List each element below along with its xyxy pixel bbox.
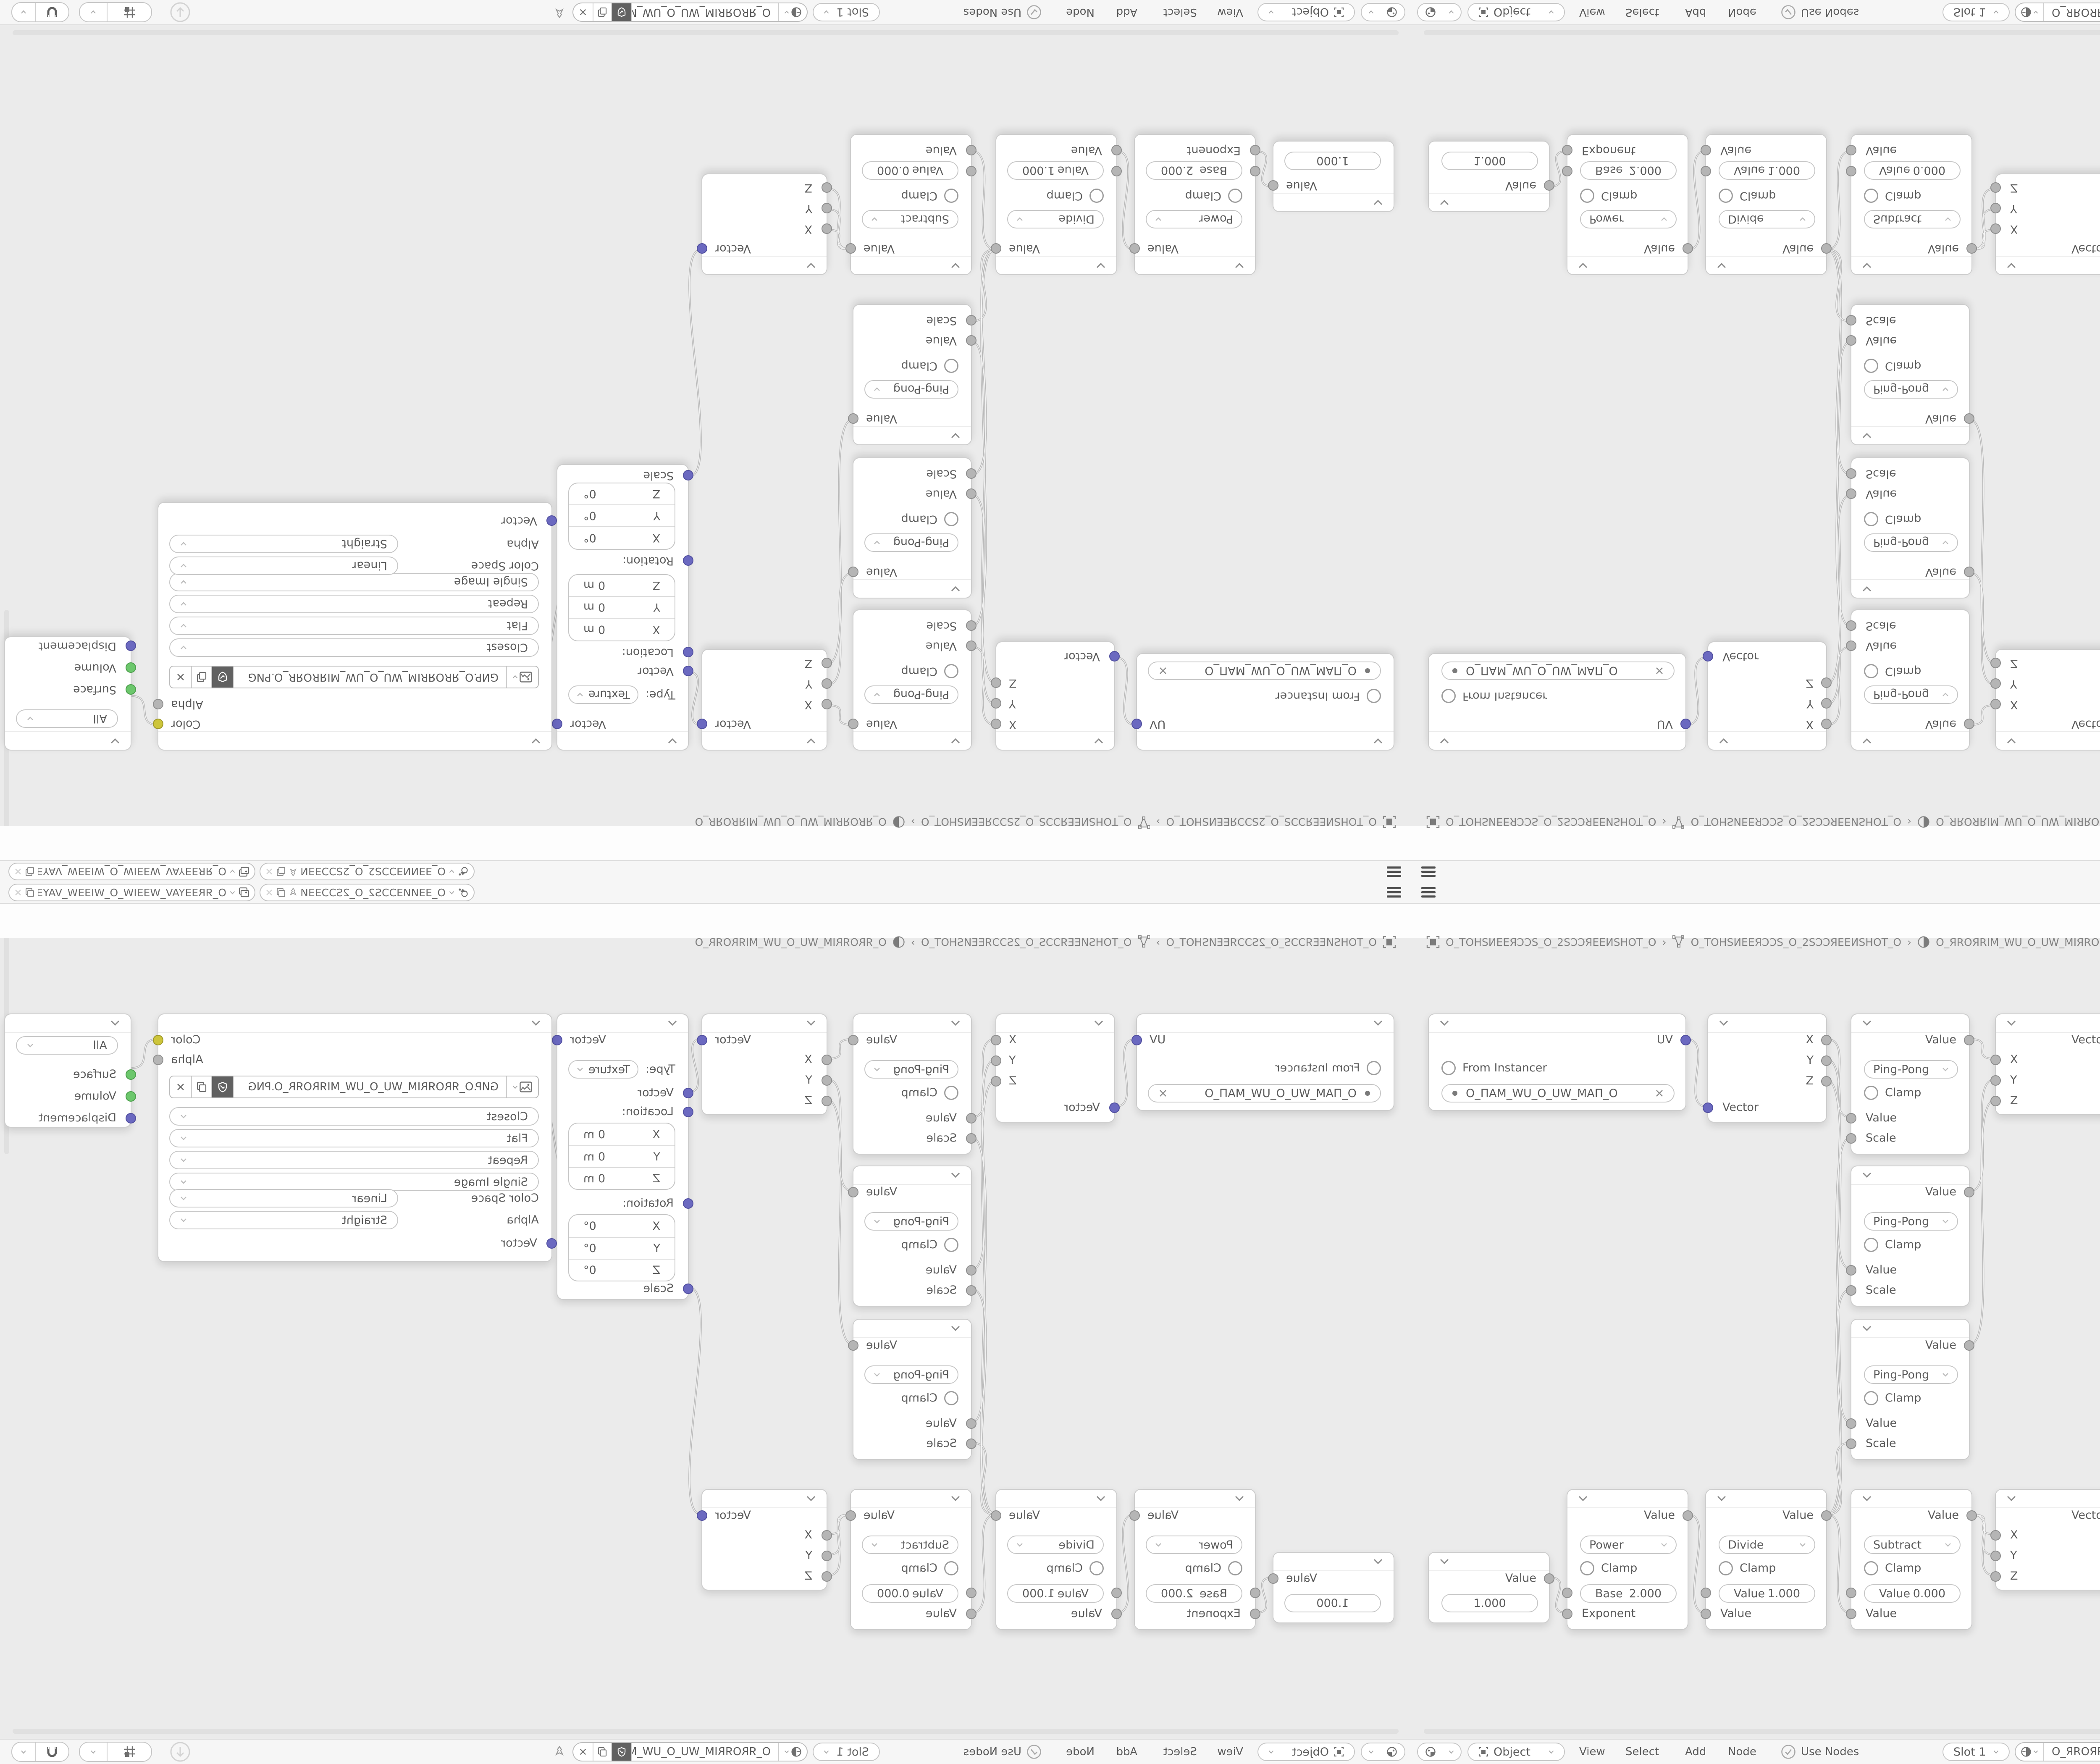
uv-map-selector[interactable]: O_ПAM_WU_O_UW_MAП_O [1148, 661, 1381, 680]
node-header[interactable] [1429, 193, 1549, 211]
snap-target-dropdown[interactable] [79, 2, 152, 22]
node-header[interactable] [1429, 1553, 1549, 1571]
node-math-power[interactable]: ValuePowerClampBase2.000Exponent [1134, 134, 1256, 275]
node-math-ping-pong-1[interactable]: ValuePing-PongClampValueScale [1851, 1013, 1970, 1155]
collapse-chevron-icon[interactable] [1096, 263, 1105, 268]
z-input-socket[interactable] [1990, 182, 2001, 193]
collapse-chevron-icon[interactable] [951, 586, 960, 592]
shader-mode-dropdown[interactable]: Object [1257, 3, 1355, 21]
slot-dropdown[interactable]: Slot 1 [813, 3, 880, 21]
menu-hamburger-button[interactable] [1387, 887, 1401, 898]
value-output-socket[interactable] [845, 243, 856, 254]
node-math-ping-pong-3[interactable]: ValuePing-PongClampValueScale [1851, 304, 1970, 445]
material-browse-dropdown[interactable] [2016, 1743, 2043, 1761]
clear-x-icon[interactable] [1159, 667, 1167, 675]
clamp-checkbox[interactable] [1580, 1561, 1594, 1575]
rotation-z-value[interactable]: 0° [583, 1264, 596, 1277]
material-datablock-selector[interactable]: O_ЯROЯRIM_WU_O_UW_MIЯROЯR_O [2015, 1742, 2100, 1761]
node-combine-xyz-1[interactable]: VectorXYZ [701, 649, 827, 751]
node-header[interactable] [5, 1014, 131, 1033]
collapse-chevron-icon[interactable] [1862, 1020, 1872, 1026]
menu-view[interactable]: View [1579, 1740, 1605, 1764]
value-output-socket[interactable] [1683, 1510, 1693, 1521]
node-header[interactable] [1708, 731, 1826, 750]
math-operation-dropdown[interactable]: Ping-Pong [1864, 533, 1958, 552]
node-material-output[interactable]: All Surface Volume Displacement [4, 1013, 131, 1128]
second-input-socket[interactable] [966, 1609, 976, 1619]
node-header[interactable] [851, 1490, 971, 1508]
math-operation-dropdown[interactable]: Ping-Pong [864, 533, 958, 552]
pin-icon[interactable] [289, 866, 297, 877]
second-input-socket[interactable] [1846, 1609, 1856, 1619]
field-input-socket[interactable] [1701, 1588, 1711, 1598]
value-field[interactable]: Value1.000 [1007, 161, 1104, 180]
material-datablock-selector[interactable]: O_ЯROЯRIM_WU_O_UW_MIЯROЯR_O [572, 3, 808, 22]
scale-input-socket[interactable] [1846, 315, 1856, 325]
collapse-chevron-icon[interactable] [1235, 263, 1244, 268]
node-mapping[interactable]: Vector Type: Texture Vector Location: X0… [556, 1013, 689, 1300]
node-header[interactable] [158, 731, 551, 750]
scale-input-socket[interactable] [966, 468, 976, 479]
interpolation-dropdown[interactable]: Closest [169, 1107, 539, 1126]
node-math-ping-pong-2[interactable]: ValuePing-PongClampValueScale [1851, 457, 1970, 598]
material-browse-dropdown[interactable] [2016, 3, 2043, 21]
clamp-checkbox[interactable] [1864, 512, 1878, 526]
node-header[interactable] [996, 731, 1114, 750]
node-combine-xyz-1[interactable]: VectorXYZ [1995, 649, 2100, 751]
collapse-chevron-icon[interactable] [1719, 1020, 1728, 1026]
value-output-socket[interactable] [991, 243, 1001, 254]
second-input-socket[interactable] [1250, 145, 1260, 155]
node-header[interactable] [1567, 256, 1688, 274]
menu-add[interactable]: Add [1116, 1740, 1137, 1764]
vector-input-socket[interactable] [1109, 651, 1120, 661]
y-input-socket[interactable] [822, 678, 832, 689]
z-output-socket[interactable] [1821, 1076, 1832, 1087]
collapse-chevron-icon[interactable] [668, 738, 677, 744]
scale-input-socket[interactable] [1846, 1438, 1856, 1449]
clear-x-icon[interactable] [1655, 667, 1664, 675]
node-header[interactable] [1137, 731, 1394, 750]
collapse-chevron-icon[interactable] [1440, 738, 1449, 744]
x-output-socket[interactable] [1821, 719, 1832, 729]
node-header[interactable] [1429, 1014, 1685, 1033]
image-browse-dropdown[interactable] [507, 1076, 538, 1097]
menu-node[interactable]: Node [1066, 0, 1095, 24]
scale-input-socket[interactable] [966, 1438, 976, 1449]
field-input-socket[interactable] [1846, 166, 1856, 176]
node-combine-xyz-2[interactable]: VectorXYZ [701, 1489, 827, 1591]
clamp-checkbox[interactable] [1228, 1561, 1242, 1575]
vector-input-socket[interactable] [683, 666, 693, 676]
vector-output-socket[interactable] [697, 1035, 707, 1045]
node-math-subtract[interactable]: ValueSubtractClampValue0.000Value [1851, 1489, 1972, 1630]
scale-input-socket[interactable] [683, 470, 693, 480]
node-math-ping-pong-1[interactable]: ValuePing-PongClampValueScale [853, 609, 972, 751]
node-header[interactable] [1137, 1014, 1394, 1033]
node-material-output[interactable]: All Surface Volume Displacement [4, 636, 131, 751]
collapse-chevron-icon[interactable] [531, 1020, 541, 1026]
source-dropdown[interactable]: Single Image [169, 573, 539, 591]
field-input-socket[interactable] [1111, 1588, 1122, 1598]
x-output-socket[interactable] [1821, 1035, 1832, 1045]
node-header[interactable] [1851, 256, 1971, 274]
menu-hamburger-button[interactable] [1421, 887, 1436, 898]
clamp-checkbox[interactable] [1864, 1561, 1878, 1575]
second-input-socket[interactable] [1562, 145, 1572, 155]
node-header[interactable] [702, 1490, 827, 1508]
value-output-socket[interactable] [1683, 243, 1693, 254]
breadcrumb-scene[interactable]: O_TOHSИEEЯƆƆS_O_2SƆƆЯEEИSHOT_O [1691, 816, 1902, 828]
node-header[interactable] [1996, 256, 2100, 274]
slot-dropdown[interactable]: Slot 1 [1942, 3, 2010, 21]
node-header[interactable] [853, 426, 971, 444]
value-input-socket[interactable] [966, 1418, 976, 1429]
clamp-checkbox[interactable] [944, 1238, 958, 1252]
collapse-chevron-icon[interactable] [951, 738, 960, 744]
value-output-socket[interactable] [1544, 1573, 1554, 1584]
clamp-checkbox[interactable] [944, 189, 958, 203]
node-header[interactable] [996, 1014, 1114, 1033]
editor-type-dropdown[interactable] [1361, 3, 1405, 21]
new-datablock-icon[interactable] [276, 887, 286, 898]
node-header[interactable] [557, 731, 688, 750]
image-datablock-selector[interactable]: GИP.O_ЯROЯRIM_WU_O_UW_MIЯROЯR_O.PNG [169, 666, 539, 688]
node-header[interactable] [1567, 1490, 1688, 1508]
node-header[interactable] [1273, 193, 1394, 211]
scale-input-socket[interactable] [966, 315, 976, 325]
extension-dropdown[interactable]: Repeat [169, 1151, 539, 1169]
use-nodes-label[interactable]: Use Nodes [1801, 0, 1859, 24]
value-field[interactable]: Value1.000 [1007, 1584, 1104, 1603]
node-math-divide[interactable]: ValueDivideClampValue1.000Value [1705, 134, 1827, 275]
collapse-chevron-icon[interactable] [806, 738, 816, 744]
fake-user-shield-button[interactable] [612, 1743, 632, 1761]
node-header[interactable] [1851, 1490, 1971, 1508]
vector-input-socket[interactable] [546, 515, 557, 526]
image-browse-dropdown[interactable] [507, 667, 538, 688]
vector-input-socket[interactable] [1703, 651, 1713, 661]
x-input-socket[interactable] [1990, 223, 2001, 234]
value-output-socket[interactable] [848, 567, 858, 577]
value-input-socket[interactable] [1846, 1265, 1856, 1276]
use-nodes-checkbox[interactable] [1026, 5, 1042, 20]
math-operation-dropdown[interactable]: Subtract [1864, 210, 1961, 228]
field-input-socket[interactable] [1111, 166, 1122, 176]
collapse-chevron-icon[interactable] [1862, 1326, 1872, 1331]
field-input-socket[interactable] [1250, 166, 1260, 176]
node-combine-xyz-1[interactable]: VectorXYZ [701, 1013, 827, 1115]
collapse-chevron-icon[interactable] [668, 1020, 677, 1026]
second-input-socket[interactable] [1111, 1609, 1122, 1619]
node-header[interactable] [1706, 1490, 1826, 1508]
snapping-toggle[interactable] [11, 1742, 69, 1762]
unlink-material-button[interactable] [573, 3, 593, 21]
collapse-chevron-icon[interactable] [951, 1172, 960, 1178]
node-math-divide[interactable]: ValueDivideClampValue1.000Value [995, 134, 1117, 275]
field-input-socket[interactable] [1250, 1588, 1260, 1598]
collapse-chevron-icon[interactable] [2007, 738, 2016, 744]
z-input-socket[interactable] [1990, 1096, 2001, 1106]
interpolation-dropdown[interactable]: Closest [169, 638, 539, 657]
scale-input-socket[interactable] [966, 620, 976, 631]
color-space-dropdown[interactable]: Linear [169, 556, 398, 575]
breadcrumb-material[interactable]: O_ЯROЯRIM_WU_O_UW_MIЯROЯR_O [1936, 936, 2100, 948]
rotation-x-value[interactable]: 0° [583, 532, 596, 545]
value-field[interactable]: Value0.000 [1864, 1584, 1961, 1603]
math-operation-dropdown[interactable]: Subtract [862, 1536, 958, 1554]
shader-mode-dropdown[interactable]: Object [1467, 1743, 1565, 1761]
clamp-checkbox[interactable] [944, 1391, 958, 1405]
field-input-socket[interactable] [1562, 1588, 1572, 1598]
fake-user-shield-button[interactable] [212, 667, 234, 688]
clamp-checkbox[interactable] [1864, 1238, 1878, 1252]
pin-icon[interactable] [554, 6, 565, 18]
vector-input-socket[interactable] [1703, 1102, 1713, 1113]
clear-x-icon[interactable] [1655, 1089, 1664, 1097]
math-operation-dropdown[interactable]: Power [1146, 210, 1242, 228]
collapse-chevron-icon[interactable] [1862, 433, 1872, 438]
y-input-socket[interactable] [822, 1551, 832, 1561]
second-input-socket[interactable] [1701, 1609, 1711, 1619]
use-nodes-label[interactable]: Use Nodes [963, 1740, 1021, 1764]
overlay-arrow-button[interactable] [169, 1741, 191, 1763]
collapse-chevron-icon[interactable] [1862, 263, 1872, 268]
unlink-image-button[interactable] [170, 667, 192, 688]
node-math-power[interactable]: ValuePowerClampBase2.000Exponent [1567, 1489, 1688, 1630]
clamp-checkbox[interactable] [1864, 664, 1878, 678]
menu-select[interactable]: Select [1163, 0, 1197, 24]
collapse-chevron-icon[interactable] [1719, 738, 1728, 744]
node-uv-map[interactable]: UV From Instancer O_ПAM_WU_O_UW_MAП_O [1428, 1013, 1686, 1111]
vector-output-socket[interactable] [697, 1510, 707, 1521]
node-header[interactable] [1429, 731, 1685, 750]
clamp-checkbox[interactable] [1864, 359, 1878, 373]
node-value[interactable]: Value 1.000 [1428, 141, 1550, 212]
pin-icon[interactable] [289, 887, 297, 898]
collapse-chevron-icon[interactable] [951, 1496, 960, 1501]
value-output-socket[interactable] [848, 1340, 858, 1351]
node-combine-xyz-2[interactable]: VectorXYZ [701, 173, 827, 275]
node-header[interactable] [853, 731, 971, 750]
node-header[interactable] [1708, 1014, 1826, 1033]
collapse-chevron-icon[interactable] [110, 1020, 120, 1026]
node-mapping[interactable]: Vector Type: Texture Vector Location: X0… [556, 464, 689, 751]
value-output-socket[interactable] [845, 1510, 856, 1521]
value-input-socket[interactable] [966, 1113, 976, 1123]
value-output-socket[interactable] [1129, 1510, 1140, 1521]
shader-mode-dropdown[interactable]: Object [1467, 3, 1565, 21]
x-input-socket[interactable] [822, 1055, 832, 1065]
collapse-chevron-icon[interactable] [1094, 738, 1103, 744]
value-output-socket[interactable] [1964, 1340, 1974, 1351]
node-header[interactable] [702, 731, 827, 750]
clamp-checkbox[interactable] [944, 664, 958, 678]
second-input-socket[interactable] [1701, 145, 1711, 155]
location-fields[interactable]: X0 m Y0 m Z0 m [568, 1123, 675, 1190]
overlay-arrow-button[interactable] [169, 1, 191, 23]
y-output-socket[interactable] [991, 698, 1001, 709]
value-field[interactable]: Base2.000 [1146, 161, 1242, 180]
color-space-dropdown[interactable]: Linear [169, 1189, 398, 1207]
math-operation-dropdown[interactable]: Power [1580, 1536, 1677, 1554]
second-input-socket[interactable] [1846, 145, 1856, 155]
location-x-value[interactable]: 0 m [583, 1128, 605, 1141]
location-y-value[interactable]: 0 m [583, 1150, 605, 1163]
z-input-socket[interactable] [1990, 1571, 2001, 1582]
clamp-checkbox[interactable] [1228, 189, 1242, 203]
editor-type-dropdown[interactable] [1361, 1743, 1405, 1761]
math-operation-dropdown[interactable]: Divide [1719, 210, 1815, 228]
collapse-chevron-icon[interactable] [1373, 1020, 1383, 1026]
node-math-divide[interactable]: ValueDivideClampValue1.000Value [995, 1489, 1117, 1630]
breadcrumb-material[interactable]: O_ЯROЯRIM_WU_O_UW_MIЯROЯR_O [695, 816, 887, 828]
value-output-socket[interactable] [1268, 180, 1278, 191]
collapse-chevron-icon[interactable] [110, 738, 120, 744]
node-header[interactable] [1996, 1014, 2100, 1033]
uv-output-socket[interactable] [1680, 719, 1691, 729]
second-input-socket[interactable] [966, 145, 976, 155]
clamp-checkbox[interactable] [1719, 1561, 1733, 1575]
node-header[interactable] [853, 1166, 971, 1185]
alpha-mode-dropdown[interactable]: Straight [169, 535, 398, 553]
node-math-power[interactable]: ValuePowerClampBase2.000Exponent [1134, 1489, 1256, 1630]
z-output-socket[interactable] [1821, 677, 1832, 688]
field-input-socket[interactable] [966, 1588, 976, 1598]
snapping-toggle[interactable] [11, 2, 69, 22]
vector-output-socket[interactable] [552, 719, 562, 729]
clamp-checkbox[interactable] [1864, 1391, 1878, 1405]
color-output-socket[interactable] [153, 1035, 163, 1045]
breadcrumb-material[interactable]: O_ЯROЯRIM_WU_O_UW_MIЯROЯR_O [1936, 816, 2100, 828]
node-math-power[interactable]: ValuePowerClampBase2.000Exponent [1567, 134, 1688, 275]
collapse-chevron-icon[interactable] [806, 1496, 816, 1501]
value-output-socket[interactable] [1964, 719, 1974, 729]
clamp-checkbox[interactable] [1864, 1086, 1878, 1100]
math-operation-dropdown[interactable]: Ping-Pong [864, 1212, 958, 1231]
node-header[interactable] [996, 256, 1116, 274]
y-output-socket[interactable] [991, 1055, 1001, 1066]
rotation-y-value[interactable]: 0° [583, 509, 596, 522]
node-header[interactable] [1851, 1014, 1969, 1033]
math-operation-dropdown[interactable]: Power [1146, 1536, 1242, 1554]
material-datablock-selector[interactable]: O_ЯROЯRIM_WU_O_UW_MIЯROЯR_O [2015, 3, 2100, 22]
collapse-chevron-icon[interactable] [1717, 1496, 1726, 1501]
math-operation-dropdown[interactable]: Divide [1007, 210, 1104, 228]
node-header[interactable] [158, 1014, 551, 1033]
location-z-value[interactable]: 0 m [583, 1172, 605, 1185]
value-output-socket[interactable] [848, 719, 858, 729]
editor-type-dropdown[interactable] [1417, 3, 1462, 21]
second-input-socket[interactable] [1562, 1609, 1572, 1619]
displacement-input-socket[interactable] [126, 640, 136, 651]
node-math-subtract[interactable]: ValueSubtractClampValue0.000Value [1851, 134, 1972, 275]
remove-x-icon[interactable] [14, 868, 22, 875]
value-output-socket[interactable] [1966, 1510, 1977, 1521]
node-math-subtract[interactable]: ValueSubtractClampValue0.000Value [850, 134, 972, 275]
rotation-input-socket[interactable] [683, 555, 693, 566]
math-operation-dropdown[interactable]: Ping-Pong [864, 685, 958, 704]
material-browse-dropdown[interactable] [779, 1743, 807, 1761]
clamp-checkbox[interactable] [1580, 189, 1594, 203]
field-input-socket[interactable] [1562, 166, 1572, 176]
z-input-socket[interactable] [822, 1571, 832, 1582]
material-datablock-selector[interactable]: O_ЯROЯRIM_WU_O_UW_MIЯROЯR_O [572, 1742, 808, 1761]
node-header[interactable] [1135, 256, 1255, 274]
collapse-chevron-icon[interactable] [1373, 1559, 1383, 1564]
collapse-chevron-icon[interactable] [2007, 1496, 2016, 1501]
value-output-socket[interactable] [1544, 180, 1554, 191]
math-operation-dropdown[interactable]: Ping-Pong [1864, 685, 1958, 704]
menu-node[interactable]: Node [1728, 1740, 1756, 1764]
value-input-socket[interactable] [966, 335, 976, 346]
node-header[interactable] [1996, 1490, 2100, 1508]
shader-mode-dropdown[interactable]: Object [1257, 1743, 1355, 1761]
breadcrumb-scene[interactable]: O_TOHSИEEЯƆƆS_O_2SƆƆЯEEИSHOT_O [921, 936, 1132, 948]
x-input-socket[interactable] [1990, 699, 2001, 709]
new-datablock-icon[interactable] [25, 866, 34, 877]
volume-input-socket[interactable] [126, 662, 136, 673]
uv-output-socket[interactable] [1131, 1035, 1142, 1045]
math-operation-dropdown[interactable]: Ping-Pong [864, 380, 958, 399]
from-instancer-checkbox[interactable] [1367, 1061, 1381, 1075]
location-y-value[interactable]: 0 m [583, 601, 605, 614]
projection-dropdown[interactable]: Flat [169, 617, 539, 635]
view-layer-selector[interactable]: O_ЯRƎƎYAV_WƎƎIW_O_WIƎƎW_VAYƎƎR_O [8, 863, 255, 880]
vector-input-socket[interactable] [683, 1088, 693, 1098]
value-output-socket[interactable] [1268, 1573, 1278, 1584]
rotation-x-value[interactable]: 0° [583, 1220, 596, 1233]
node-value[interactable]: Value 1.000 [1273, 1552, 1394, 1623]
remove-x-icon[interactable] [14, 889, 22, 896]
location-x-value[interactable]: 0 m [583, 623, 605, 636]
projection-dropdown[interactable]: Flat [169, 1129, 539, 1147]
math-operation-dropdown[interactable]: Ping-Pong [1864, 1365, 1958, 1384]
breadcrumb-screen[interactable]: O_TOHSИEEЯƆƆS_O_2SƆƆЯEEИSHOT_O [1446, 936, 1656, 948]
new-datablock-icon[interactable] [276, 866, 286, 877]
output-target-dropdown[interactable]: All [16, 1036, 118, 1055]
menu-add[interactable]: Add [1685, 1740, 1706, 1764]
use-nodes-checkbox[interactable] [1781, 5, 1796, 20]
collapse-chevron-icon[interactable] [531, 738, 541, 744]
rotation-fields[interactable]: X0° Y0° Z0° [568, 1214, 675, 1281]
breadcrumb-scene[interactable]: O_TOHSИEEЯƆƆS_O_2SƆƆЯEEИSHOT_O [1691, 936, 1902, 948]
value-field[interactable]: Value0.000 [862, 1584, 958, 1603]
scale-input-socket[interactable] [966, 1133, 976, 1144]
breadcrumb-screen[interactable]: O_TOHSИEEЯƆƆS_O_2SƆƆЯEEИSHOT_O [1446, 816, 1656, 828]
node-uv-map[interactable]: UV From Instancer O_ПAM_WU_O_UW_MAП_O [1136, 653, 1394, 751]
value-output-socket[interactable] [1964, 1187, 1974, 1197]
menu-add[interactable]: Add [1685, 0, 1706, 24]
y-input-socket[interactable] [822, 203, 832, 213]
y-output-socket[interactable] [1821, 1055, 1832, 1066]
y-output-socket[interactable] [1821, 698, 1832, 709]
x-input-socket[interactable] [822, 223, 832, 234]
z-output-socket[interactable] [991, 1076, 1001, 1087]
node-header[interactable] [853, 1320, 971, 1338]
node-separate-xyz[interactable]: X Y Z Vector [995, 641, 1115, 751]
output-target-dropdown[interactable]: All [16, 709, 118, 728]
new-datablock-icon[interactable] [25, 887, 34, 898]
node-header[interactable] [1996, 731, 2100, 750]
value-output-socket[interactable] [1964, 1035, 1974, 1045]
scale-input-socket[interactable] [1846, 1133, 1856, 1144]
from-instancer-checkbox[interactable] [1441, 689, 1456, 703]
collapse-chevron-icon[interactable] [1440, 1559, 1449, 1564]
x-input-socket[interactable] [822, 1530, 832, 1541]
use-nodes-label[interactable]: Use Nodes [963, 0, 1021, 24]
node-value[interactable]: Value 1.000 [1428, 1552, 1550, 1623]
